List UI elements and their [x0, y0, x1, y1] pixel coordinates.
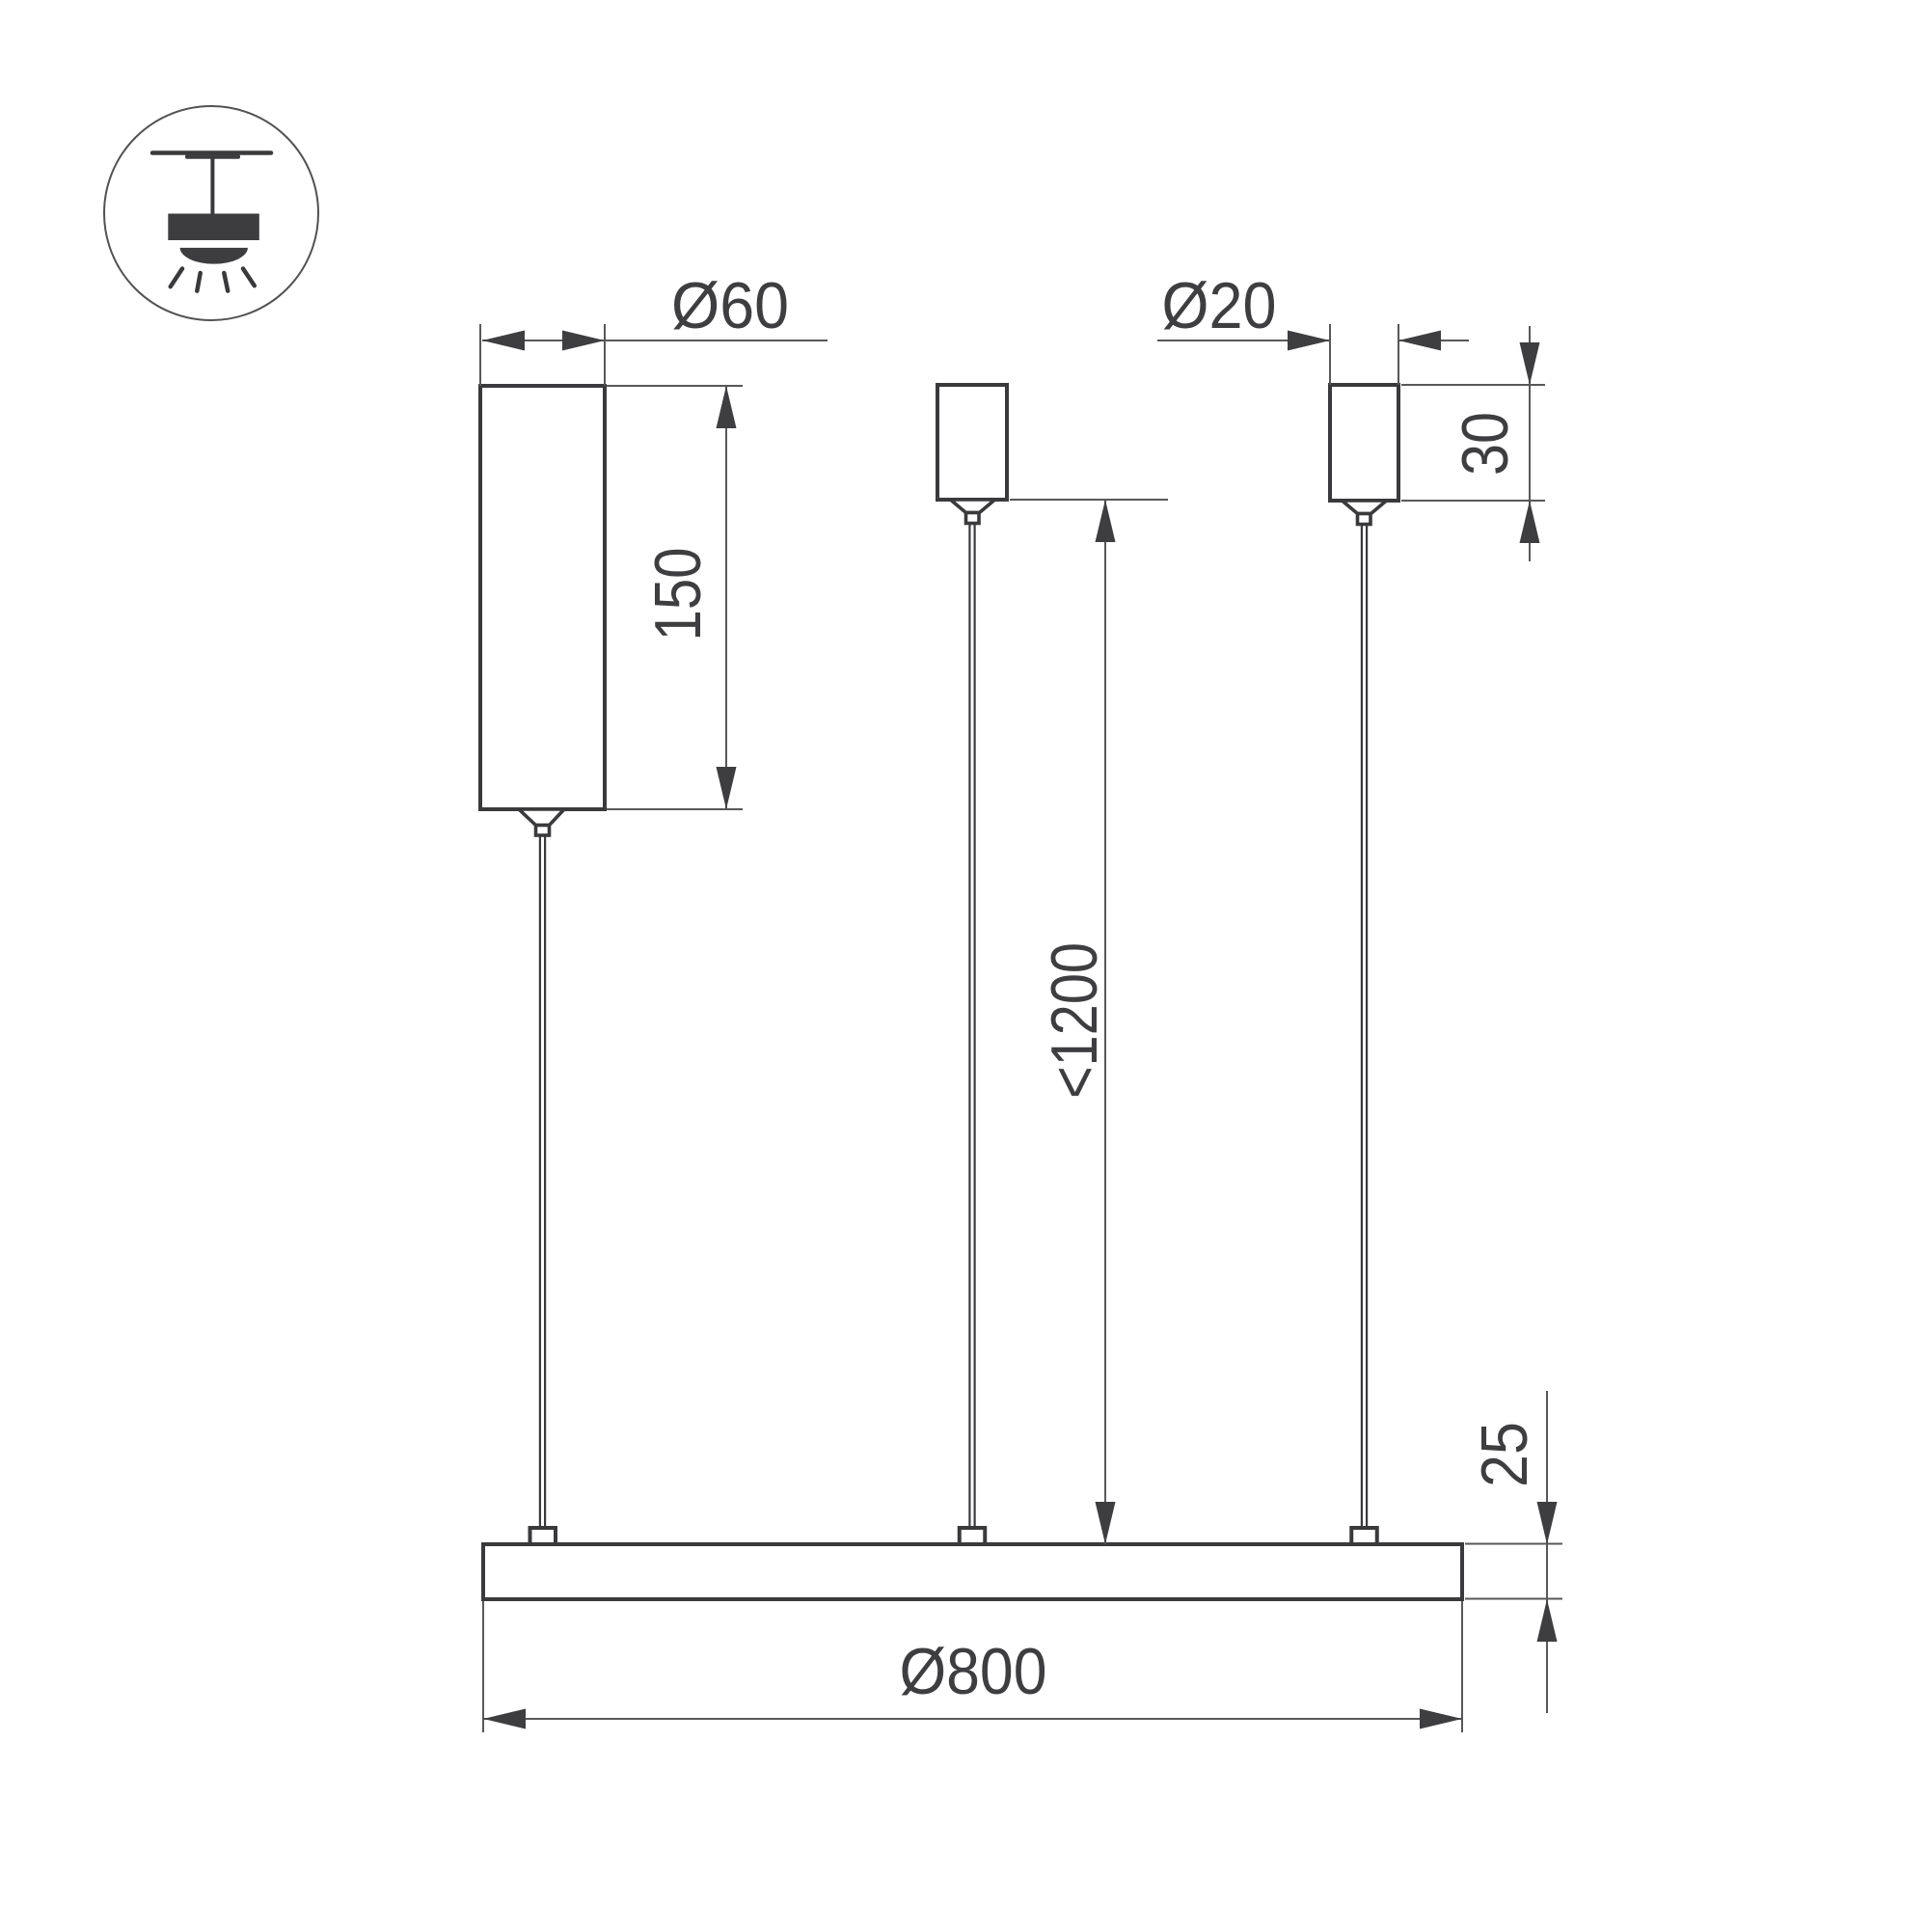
svg-text:150: 150 — [641, 548, 715, 641]
svg-text:30: 30 — [1449, 412, 1522, 476]
svg-text:Ø20: Ø20 — [1162, 269, 1277, 342]
svg-text:<1200: <1200 — [1038, 942, 1111, 1099]
svg-text:25: 25 — [1468, 1422, 1541, 1487]
svg-text:Ø60: Ø60 — [671, 269, 789, 342]
svg-text:Ø800: Ø800 — [900, 1635, 1047, 1708]
